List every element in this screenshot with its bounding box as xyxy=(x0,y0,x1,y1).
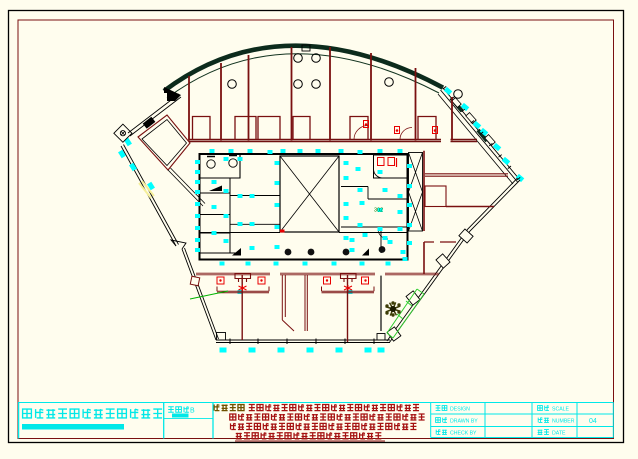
svg-text:SCALE: SCALE xyxy=(552,407,570,413)
svg-text:CHECK BY: CHECK BY xyxy=(450,431,477,437)
svg-text:04: 04 xyxy=(589,418,597,425)
svg-text:B: B xyxy=(190,408,195,415)
svg-text:302: 302 xyxy=(374,208,383,214)
svg-text:DRAWN BY: DRAWN BY xyxy=(450,419,478,425)
svg-text:DATE: DATE xyxy=(552,431,566,437)
svg-text:DESIGN: DESIGN xyxy=(450,407,470,413)
svg-text:NUMBER: NUMBER xyxy=(552,419,575,425)
